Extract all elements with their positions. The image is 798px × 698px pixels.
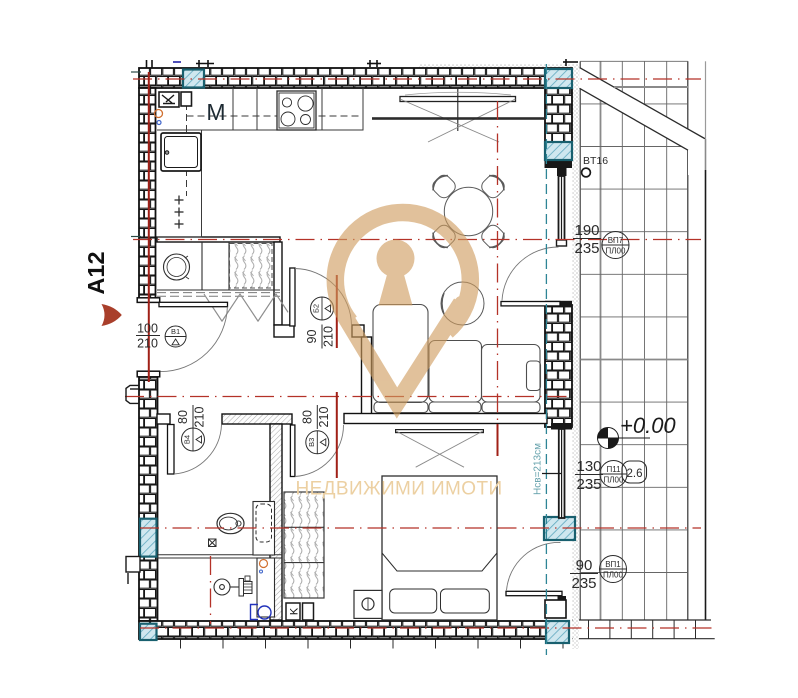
svg-text:210: 210 (137, 337, 158, 351)
svg-text:НЕДВИЖИМИ ИМОТИ: НЕДВИЖИМИ ИМОТИ (295, 479, 502, 500)
svg-text:235: 235 (576, 476, 601, 493)
svg-text:90: 90 (576, 557, 593, 574)
svg-text:M: M (206, 99, 225, 125)
svg-text:ПЛ00: ПЛ00 (604, 476, 624, 485)
svg-text:K: K (289, 607, 301, 615)
svg-text:В3: В3 (307, 438, 316, 447)
svg-text:ВП7: ВП7 (608, 236, 624, 245)
svg-text:235: 235 (571, 575, 596, 592)
svg-text:Б2: Б2 (312, 304, 321, 313)
svg-text:210: 210 (317, 407, 331, 428)
svg-text:В4: В4 (183, 435, 192, 444)
svg-text:+0.00: +0.00 (620, 413, 676, 438)
svg-text:B1: B1 (171, 327, 180, 336)
svg-text:80: 80 (300, 410, 314, 424)
svg-text:ПЛ00: ПЛ00 (606, 247, 626, 256)
svg-text:130: 130 (576, 458, 601, 475)
svg-text:2.6: 2.6 (627, 468, 643, 480)
svg-text:190: 190 (574, 222, 599, 239)
svg-text:80: 80 (176, 410, 190, 424)
svg-text:Нсв=213см: Нсв=213см (533, 443, 544, 495)
svg-text:210: 210 (322, 326, 336, 347)
svg-text:А12: А12 (83, 251, 109, 294)
svg-text:235: 235 (574, 240, 599, 257)
svg-text:BT16: BT16 (583, 155, 608, 167)
svg-text:ПЛ00: ПЛ00 (603, 571, 623, 580)
svg-text:210: 210 (193, 407, 207, 428)
svg-text:ВП1: ВП1 (605, 560, 621, 569)
svg-text:90: 90 (305, 330, 319, 344)
svg-text:П11: П11 (606, 465, 621, 474)
svg-text:100: 100 (137, 322, 158, 336)
